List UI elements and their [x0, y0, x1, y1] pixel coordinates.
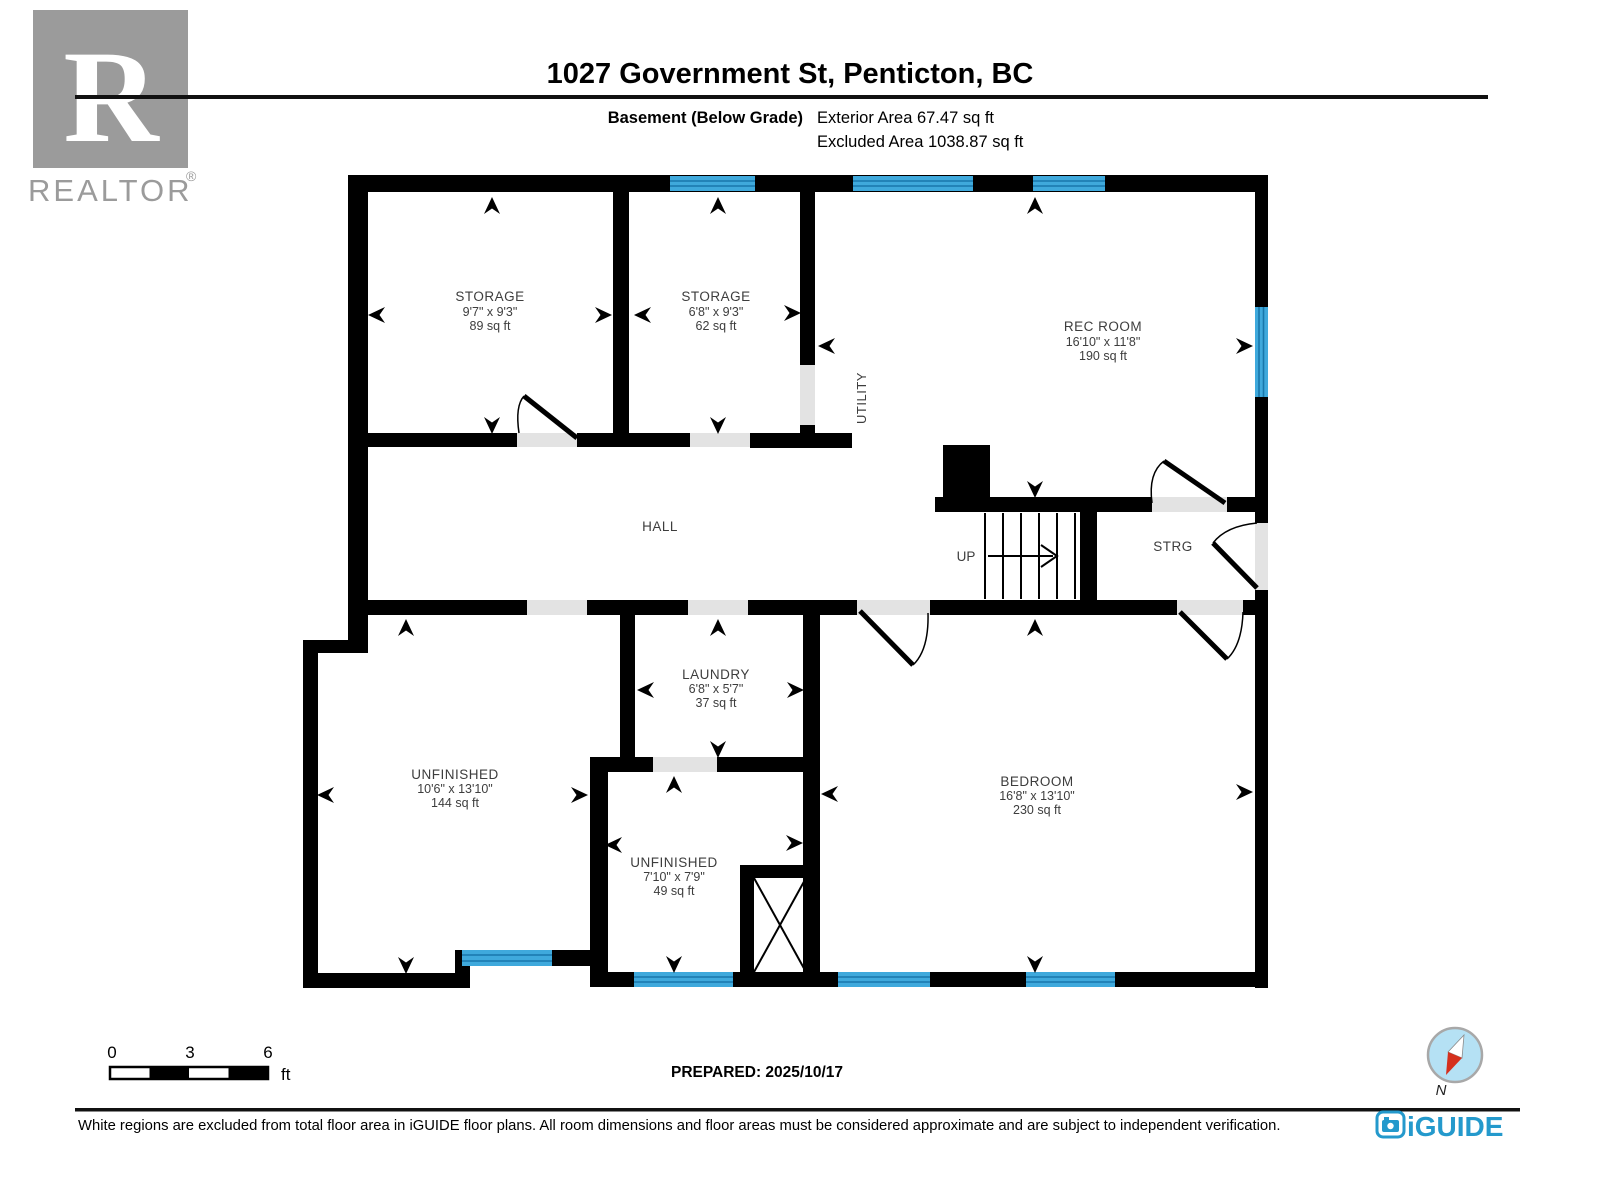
svg-text:230 sq ft: 230 sq ft [1013, 803, 1061, 817]
compass-north-label: N [1436, 1082, 1447, 1099]
svg-text:LAUNDRY: LAUNDRY [682, 667, 750, 682]
storage1-door-leaf [524, 396, 577, 438]
registered-icon: ® [186, 168, 197, 184]
bedroom-door-arc [913, 613, 928, 665]
svg-text:16'8" x 13'10": 16'8" x 13'10" [999, 789, 1075, 803]
scale-unit: ft [281, 1065, 291, 1084]
strg-side-door-arc [1213, 523, 1257, 543]
svg-text:6'8" x 5'7": 6'8" x 5'7" [689, 682, 744, 696]
svg-text:10'6" x 13'10": 10'6" x 13'10" [417, 782, 493, 796]
svg-text:UNFINISHED: UNFINISHED [411, 767, 499, 782]
iguide-brand-text: iGUIDE [1407, 1111, 1503, 1142]
scale-bar: 0 3 6 ft [107, 1043, 290, 1084]
window-stripes [462, 181, 1264, 982]
room-label-storage2: STORAGE 6'8" x 9'3" 62 sq ft [681, 289, 750, 333]
svg-text:37 sq ft: 37 sq ft [696, 696, 738, 710]
svg-text:BEDROOM: BEDROOM [1000, 774, 1073, 789]
prepared-date: PREPARED: 2025/10/17 [671, 1064, 843, 1081]
strg-bottom-door-arc [1227, 612, 1243, 659]
svg-text:62 sq ft: 62 sq ft [696, 319, 738, 333]
disclaimer-text: White regions are excluded from total fl… [78, 1118, 1280, 1134]
svg-text:STORAGE: STORAGE [681, 289, 750, 304]
windows [462, 176, 1268, 987]
room-label-unfinished2: UNFINISHED 7'10" x 7'9" 49 sq ft [630, 855, 718, 898]
svg-text:STORAGE: STORAGE [455, 289, 524, 304]
bedroom-door-leaf [860, 611, 913, 665]
walls [303, 175, 1268, 988]
svg-text:7'10" x 7'9": 7'10" x 7'9" [643, 870, 705, 884]
floorplan-page: R REALTOR ® 1027 Government St, Penticto… [0, 0, 1600, 1200]
stairs-up-label: UP [957, 549, 976, 564]
svg-text:9'7" x 9'3": 9'7" x 9'3" [463, 305, 518, 319]
strg-bottom-door-leaf [1180, 612, 1227, 659]
svg-text:16'10" x 11'8": 16'10" x 11'8" [1066, 335, 1141, 349]
room-label-utility: UTILITY [854, 372, 869, 424]
svg-text:UNFINISHED: UNFINISHED [630, 855, 718, 870]
recroom-door-arc [1151, 461, 1164, 503]
page-title: 1027 Government St, Penticton, BC [547, 58, 1034, 90]
exterior-area: Exterior Area 67.47 sq ft [817, 109, 994, 127]
room-label-laundry: LAUNDRY 6'8" x 5'7" 37 sq ft [682, 667, 750, 710]
room-label-hall: HALL [642, 519, 678, 534]
compass: N [1428, 1028, 1482, 1099]
room-label-strg: STRG [1153, 539, 1193, 554]
furnace-block [943, 445, 990, 498]
room-label-rec-room: REC ROOM 16'10" x 11'8" 190 sq ft [1064, 319, 1142, 363]
storage1-door-arc [518, 396, 524, 433]
realtor-logo: R REALTOR ® [28, 10, 197, 208]
svg-text:89 sq ft: 89 sq ft [470, 319, 512, 333]
svg-text:144 sq ft: 144 sq ft [431, 796, 479, 810]
svg-text:6'8" x 9'3": 6'8" x 9'3" [689, 305, 744, 319]
header-rule [75, 95, 1488, 99]
svg-text:REC ROOM: REC ROOM [1064, 319, 1142, 334]
room-label-storage1: STORAGE 9'7" x 9'3" 89 sq ft [455, 289, 524, 333]
scale-tick-6: 6 [263, 1043, 272, 1062]
room-label-bedroom: BEDROOM 16'8" x 13'10" 230 sq ft [999, 774, 1075, 817]
excluded-area: Excluded Area 1038.87 sq ft [817, 133, 1024, 151]
dimension-arrows [317, 197, 1253, 974]
svg-text:190 sq ft: 190 sq ft [1079, 349, 1127, 363]
scale-tick-3: 3 [185, 1043, 194, 1062]
floor-label: Basement (Below Grade) [608, 109, 803, 127]
room-label-unfinished1: UNFINISHED 10'6" x 13'10" 144 sq ft [411, 767, 499, 810]
strg-side-door-leaf [1213, 543, 1257, 588]
recroom-door-leaf [1164, 461, 1225, 503]
iguide-logo: iGUIDE [1377, 1111, 1503, 1142]
scale-tick-0: 0 [107, 1043, 116, 1062]
footer-rule [75, 1108, 1520, 1112]
realtor-logo-text: REALTOR [28, 173, 193, 208]
excluded-shaft-x [754, 878, 806, 972]
floor-subtitle: Basement (Below Grade) Exterior Area 67.… [608, 109, 1024, 151]
iguide-camera-lens [1387, 1123, 1393, 1129]
stairs [985, 513, 1075, 599]
svg-text:49 sq ft: 49 sq ft [654, 884, 696, 898]
